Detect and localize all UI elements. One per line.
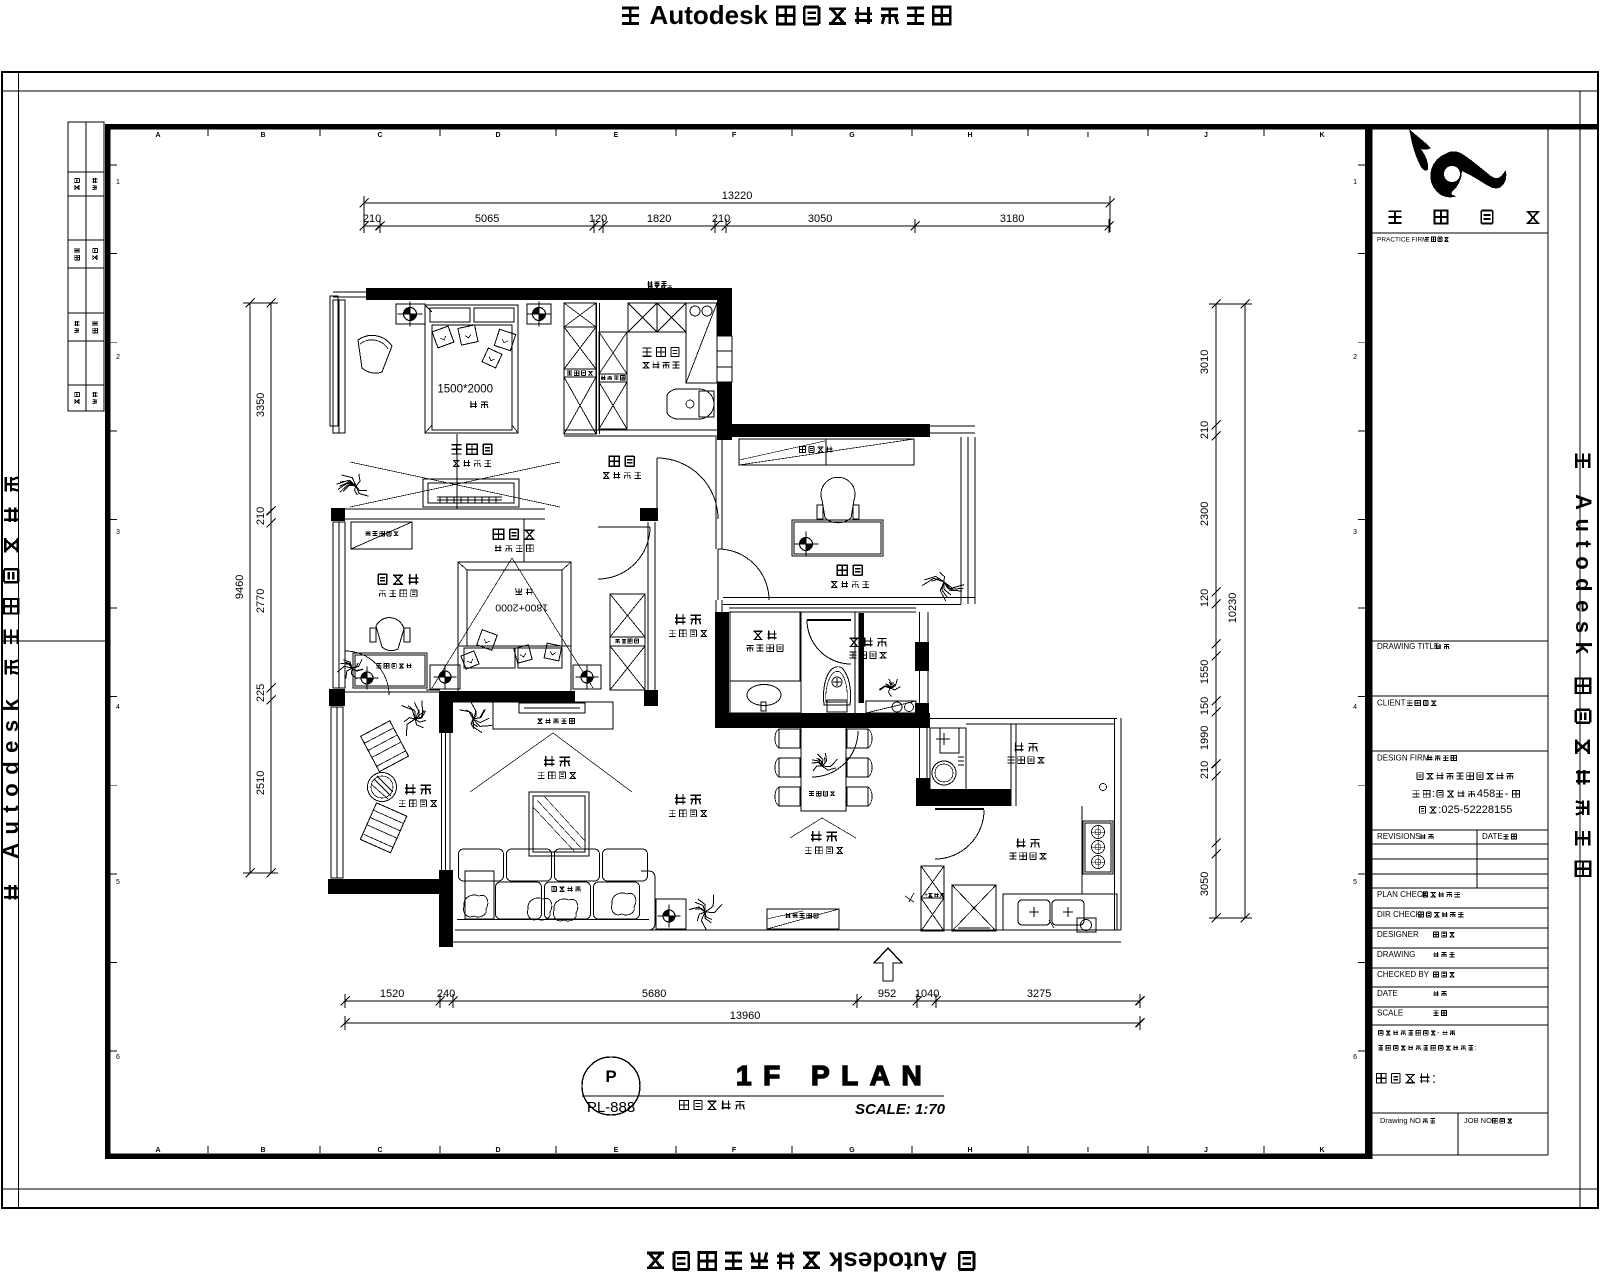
- svg-text:1: 1: [116, 179, 120, 186]
- svg-text:DATE: DATE: [1377, 989, 1398, 998]
- svg-text:210: 210: [255, 507, 267, 525]
- svg-text:Autodesk: Autodesk: [1571, 480, 1596, 677]
- svg-text::: :: [1432, 788, 1435, 800]
- svg-text:1: 1: [1353, 179, 1357, 186]
- svg-text:J: J: [1204, 132, 1208, 139]
- svg-text:C: C: [377, 1147, 382, 1154]
- svg-text:PRACTICE FIRM: PRACTICE FIRM: [1377, 236, 1429, 243]
- svg-text:4: 4: [1353, 704, 1357, 711]
- svg-text:210: 210: [1199, 421, 1211, 439]
- svg-text:2770: 2770: [255, 589, 267, 613]
- svg-text:PL-888: PL-888: [587, 1099, 635, 1116]
- svg-text:2: 2: [1353, 354, 1357, 361]
- svg-text:3275: 3275: [1027, 988, 1051, 1000]
- svg-text:REVISIONS: REVISIONS: [1377, 832, 1423, 841]
- svg-text:210: 210: [363, 213, 381, 225]
- svg-text:3050: 3050: [1199, 872, 1211, 896]
- svg-text:2510: 2510: [255, 771, 267, 795]
- svg-text:SCALE: 1:70: SCALE: 1:70: [855, 1101, 946, 1118]
- svg-text:5: 5: [116, 879, 120, 886]
- svg-text:PLAN CHECK: PLAN CHECK: [1377, 890, 1430, 899]
- svg-text:3050: 3050: [808, 213, 832, 225]
- svg-text:6: 6: [116, 1054, 120, 1061]
- svg-text:13220: 13220: [722, 190, 753, 202]
- svg-text:2: 2: [116, 354, 120, 361]
- svg-text:13960: 13960: [730, 1010, 761, 1022]
- svg-text:CHECKED BY: CHECKED BY: [1377, 970, 1430, 979]
- svg-text:210: 210: [712, 213, 730, 225]
- svg-text:I: I: [1087, 132, 1089, 139]
- svg-text:10230: 10230: [1227, 593, 1239, 624]
- svg-text:5: 5: [1353, 879, 1357, 886]
- svg-text:952: 952: [878, 988, 896, 1000]
- svg-text:H: H: [967, 1147, 972, 1154]
- svg-text:3: 3: [1353, 529, 1357, 536]
- svg-text:Autodesk: Autodesk: [0, 676, 23, 873]
- svg-text:F: F: [732, 1147, 737, 1154]
- svg-text:DIR CHECK: DIR CHECK: [1377, 910, 1423, 919]
- svg-text:B: B: [260, 1147, 265, 1154]
- svg-text:K: K: [1319, 132, 1324, 139]
- svg-text:120: 120: [589, 213, 607, 225]
- svg-text:2300: 2300: [1199, 502, 1211, 526]
- svg-text:JOB NO.: JOB NO.: [1464, 1116, 1496, 1125]
- svg-text:F: F: [732, 132, 737, 139]
- svg-text:1820: 1820: [647, 213, 671, 225]
- svg-text:120: 120: [1199, 589, 1211, 607]
- svg-text:150: 150: [1199, 697, 1211, 715]
- svg-text:3180: 3180: [1000, 213, 1024, 225]
- svg-text:DRAWING TITLE: DRAWING TITLE: [1377, 642, 1441, 651]
- svg-text::025-52228155: :025-52228155: [1438, 804, 1512, 816]
- svg-text:1500*2000: 1500*2000: [437, 383, 493, 395]
- svg-text:SCALE: SCALE: [1377, 1009, 1403, 1018]
- svg-text:B: B: [260, 132, 265, 139]
- svg-text:1990: 1990: [1199, 726, 1211, 750]
- svg-text:Drawing NO: Drawing NO: [1380, 1116, 1423, 1125]
- svg-text:G: G: [849, 1147, 855, 1154]
- svg-text:458: 458: [1477, 788, 1495, 800]
- svg-text:210: 210: [1199, 761, 1211, 779]
- svg-text:A: A: [155, 1147, 160, 1154]
- svg-text:225: 225: [255, 684, 267, 702]
- svg-text:240: 240: [437, 988, 455, 1000]
- svg-text:Autodesk: Autodesk: [822, 1247, 954, 1277]
- svg-text:C: C: [377, 132, 382, 139]
- svg-text:1550: 1550: [1199, 660, 1211, 684]
- svg-text:DATE: DATE: [1482, 832, 1505, 841]
- svg-text:6: 6: [1353, 1054, 1357, 1061]
- svg-text:9460: 9460: [234, 575, 246, 599]
- svg-text:DRAWING: DRAWING: [1377, 950, 1415, 959]
- svg-text:D: D: [495, 1147, 500, 1154]
- svg-text:DESIGN FIRM: DESIGN FIRM: [1377, 754, 1432, 763]
- svg-text:CLIENT: CLIENT: [1377, 699, 1408, 708]
- svg-text:I: I: [1087, 1147, 1089, 1154]
- svg-text:3010: 3010: [1199, 350, 1211, 374]
- svg-text::: :: [1432, 1071, 1436, 1087]
- svg-text:D: D: [495, 132, 500, 139]
- svg-text:1F PLAN: 1F PLAN: [736, 1060, 933, 1091]
- svg-text:5680: 5680: [642, 988, 666, 1000]
- svg-text::: :: [1475, 1043, 1477, 1052]
- svg-text:Autodesk: Autodesk: [643, 0, 775, 30]
- svg-text:-: -: [1505, 788, 1509, 800]
- svg-text:1520: 1520: [380, 988, 404, 1000]
- svg-text:3350: 3350: [255, 393, 267, 417]
- svg-text:1040: 1040: [915, 988, 939, 1000]
- svg-text:3: 3: [116, 529, 120, 536]
- svg-text:E: E: [614, 132, 619, 139]
- svg-text:E: E: [614, 1147, 619, 1154]
- svg-text:4: 4: [116, 704, 120, 711]
- svg-text:G: G: [849, 132, 855, 139]
- svg-text:DESIGNER: DESIGNER: [1377, 930, 1419, 939]
- svg-text:K: K: [1319, 1147, 1324, 1154]
- svg-text:A: A: [155, 132, 160, 139]
- svg-text:H: H: [967, 132, 972, 139]
- svg-text:P: P: [605, 1067, 616, 1086]
- svg-text:+: +: [924, 892, 928, 899]
- svg-text:5065: 5065: [475, 213, 499, 225]
- svg-text:J: J: [1204, 1147, 1208, 1154]
